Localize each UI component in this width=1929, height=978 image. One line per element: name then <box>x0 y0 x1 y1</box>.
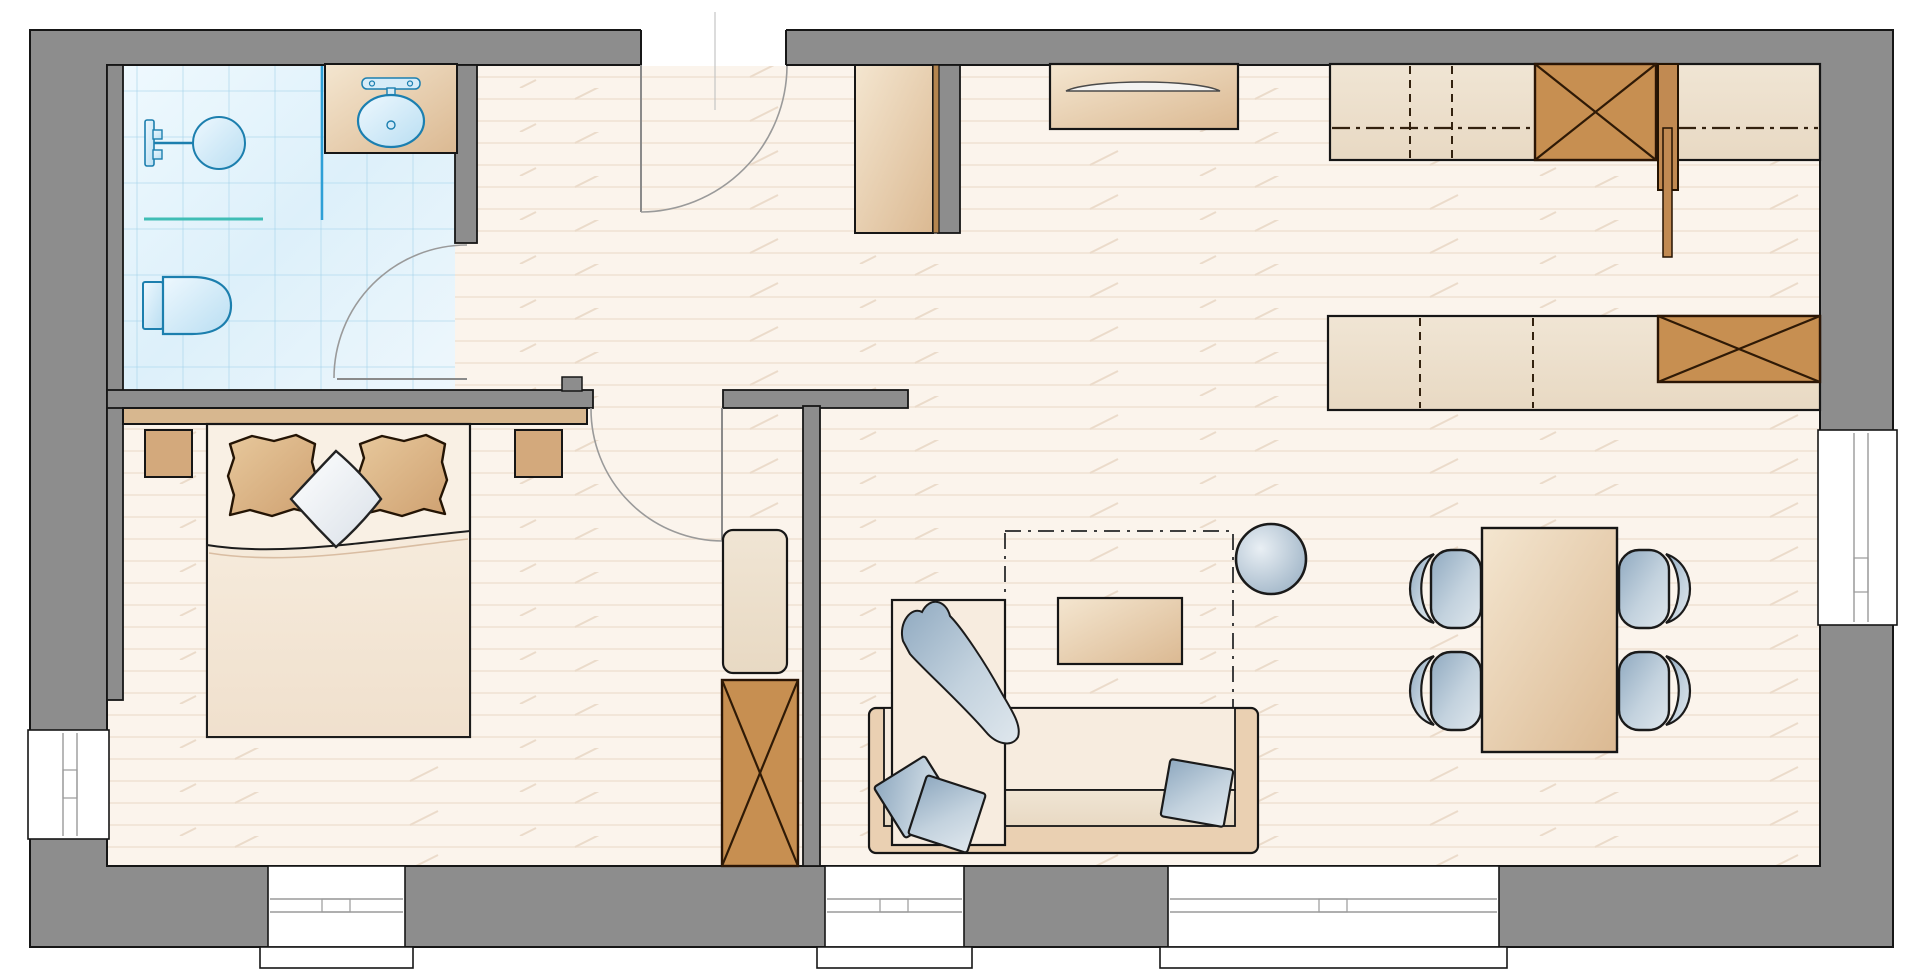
hall-wardrobe-side-panel <box>933 65 939 233</box>
window-bottom-bedroom <box>260 866 413 968</box>
door-jamb-step <box>562 377 582 391</box>
window-right <box>1818 430 1897 625</box>
sofa-cushion-3 <box>1160 759 1233 827</box>
window-bottom-living <box>817 866 972 968</box>
tall-cabinet <box>723 530 787 673</box>
dining-table <box>1482 528 1617 752</box>
bedroom-living-wall <box>803 406 820 866</box>
panel-door-bar <box>1663 128 1672 257</box>
washbasin-counter <box>325 64 457 153</box>
window-left <box>28 730 109 839</box>
bathroom-right-wall <box>455 65 477 243</box>
hall-wardrobe <box>855 65 933 233</box>
tall-unit-x-lower <box>1658 316 1820 382</box>
dining-chair-top-right <box>1619 550 1690 628</box>
wardrobe-x-bedroom <box>722 680 798 866</box>
nightstand-left <box>145 430 192 477</box>
bed-blanket <box>207 531 470 737</box>
dining-chair-top-left <box>1410 550 1481 628</box>
headboard <box>123 408 587 424</box>
bathroom-plumbing-wall <box>107 65 123 700</box>
bathroom-bottom-wall <box>107 390 593 408</box>
tall-unit-x-top <box>1535 64 1656 160</box>
toilet <box>143 277 231 334</box>
counter-run-lower <box>1328 316 1820 410</box>
hall-living-stub-wall <box>938 65 960 233</box>
dining-chair-bottom-right <box>1619 652 1690 730</box>
sideboard <box>1050 64 1238 129</box>
entrance-opening <box>641 28 786 66</box>
window-bottom-dining <box>1160 866 1507 968</box>
nightstand-right <box>515 430 562 477</box>
floor-plan-drawing <box>0 0 1929 978</box>
hallway-furniture <box>855 65 939 233</box>
floor-plan-stage <box>0 0 1929 978</box>
pouf-ball <box>1236 524 1306 594</box>
coffee-table <box>1058 598 1182 664</box>
dining-chair-bottom-left <box>1410 652 1481 730</box>
